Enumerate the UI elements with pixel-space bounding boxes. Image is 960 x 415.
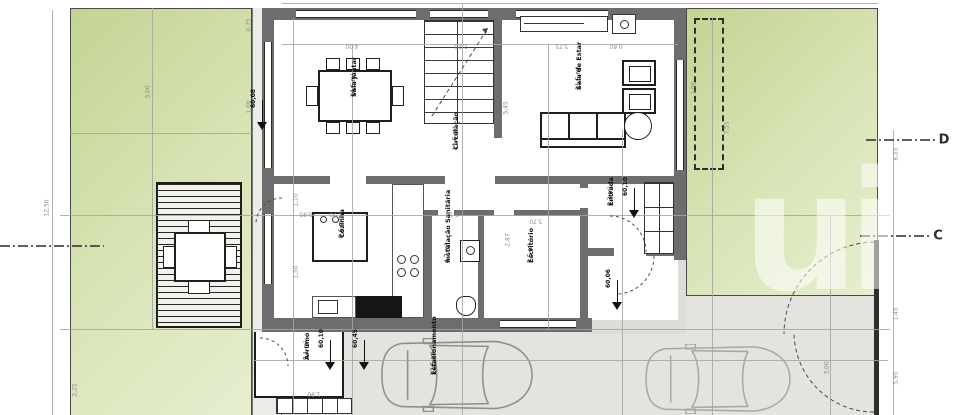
- dining-chair: [346, 58, 360, 70]
- setback-dashed-line: [694, 18, 724, 170]
- parked-car: [378, 338, 536, 412]
- wall-stairs-living: [494, 18, 502, 138]
- dimension-label: 8,55: [893, 147, 900, 160]
- window: [500, 320, 576, 328]
- exterior-steps: [276, 398, 352, 414]
- dining-chair: [366, 122, 380, 134]
- window: [676, 60, 684, 170]
- deck-chair: [225, 246, 237, 268]
- wall-kitchen-right: [424, 210, 432, 318]
- wood-stove: [612, 14, 636, 34]
- burner-icon: [410, 255, 419, 264]
- dining-chair: [326, 58, 340, 70]
- window: [296, 10, 416, 18]
- dining-chair: [306, 86, 318, 106]
- door-opening: [438, 210, 454, 216]
- dimension-label: 5,95: [893, 371, 900, 384]
- dimension-label: 12,50: [44, 199, 51, 216]
- parked-car: [636, 344, 800, 414]
- dimension-line: [282, 3, 878, 4]
- sofa-divider: [568, 114, 570, 138]
- dining-table: [318, 70, 392, 122]
- armchair: [622, 88, 656, 114]
- armchair-cushion: [629, 94, 651, 110]
- dimension-line: [52, 10, 53, 415]
- kitchen-sink: [318, 300, 338, 314]
- deck-chair: [188, 220, 210, 233]
- deck-chair: [188, 281, 210, 294]
- dimension-label: 1,45: [893, 307, 900, 320]
- storage-annex: [254, 332, 344, 398]
- sofa-backrest: [542, 138, 624, 140]
- burner-icon: [397, 268, 406, 277]
- stove-flue-icon: [620, 20, 629, 29]
- armchair-cushion: [629, 66, 651, 82]
- door-opening: [330, 176, 366, 184]
- section-marker-D: D: [939, 133, 950, 148]
- door-opening: [580, 188, 588, 208]
- dining-chair: [366, 58, 380, 70]
- wall-bath-office: [478, 216, 484, 318]
- driveway-upper-strip: [686, 296, 878, 330]
- deck-table: [174, 232, 226, 282]
- boundary-wall: [874, 240, 879, 415]
- burner-icon: [397, 255, 406, 264]
- sofa: [540, 112, 626, 148]
- kitchen-counter-dark: [356, 296, 402, 318]
- deck-chair: [163, 246, 175, 268]
- window: [430, 10, 488, 18]
- door-opening: [494, 210, 514, 216]
- section-marker-C: C: [933, 229, 943, 244]
- dimension-line: [893, 130, 894, 415]
- sofa-divider: [596, 114, 598, 138]
- burner-icon: [410, 268, 419, 277]
- sideboard: [520, 16, 608, 32]
- front-door-opening: [614, 248, 646, 256]
- door-opening: [445, 176, 495, 184]
- staircase: [424, 20, 494, 124]
- dining-chair: [392, 86, 404, 106]
- window: [264, 214, 272, 284]
- entry-closet: [644, 182, 674, 254]
- island-sink-icon: [332, 216, 339, 223]
- sink-basin-icon: [466, 246, 475, 255]
- round-side-table: [624, 112, 652, 140]
- window: [264, 42, 272, 168]
- armchair: [622, 60, 656, 86]
- toilet: [456, 296, 476, 316]
- dining-chair: [326, 122, 340, 134]
- island-sink-icon: [320, 216, 327, 223]
- sideboard-detail: [524, 23, 584, 24]
- floor-plan-canvas: Sala Jantar14,6 m²Sala de Estar21,5 m²Ci…: [0, 0, 960, 415]
- bathroom-sink: [460, 240, 480, 262]
- staircase-rail: [457, 20, 458, 124]
- dining-chair: [346, 122, 360, 134]
- cooktop: [396, 254, 422, 280]
